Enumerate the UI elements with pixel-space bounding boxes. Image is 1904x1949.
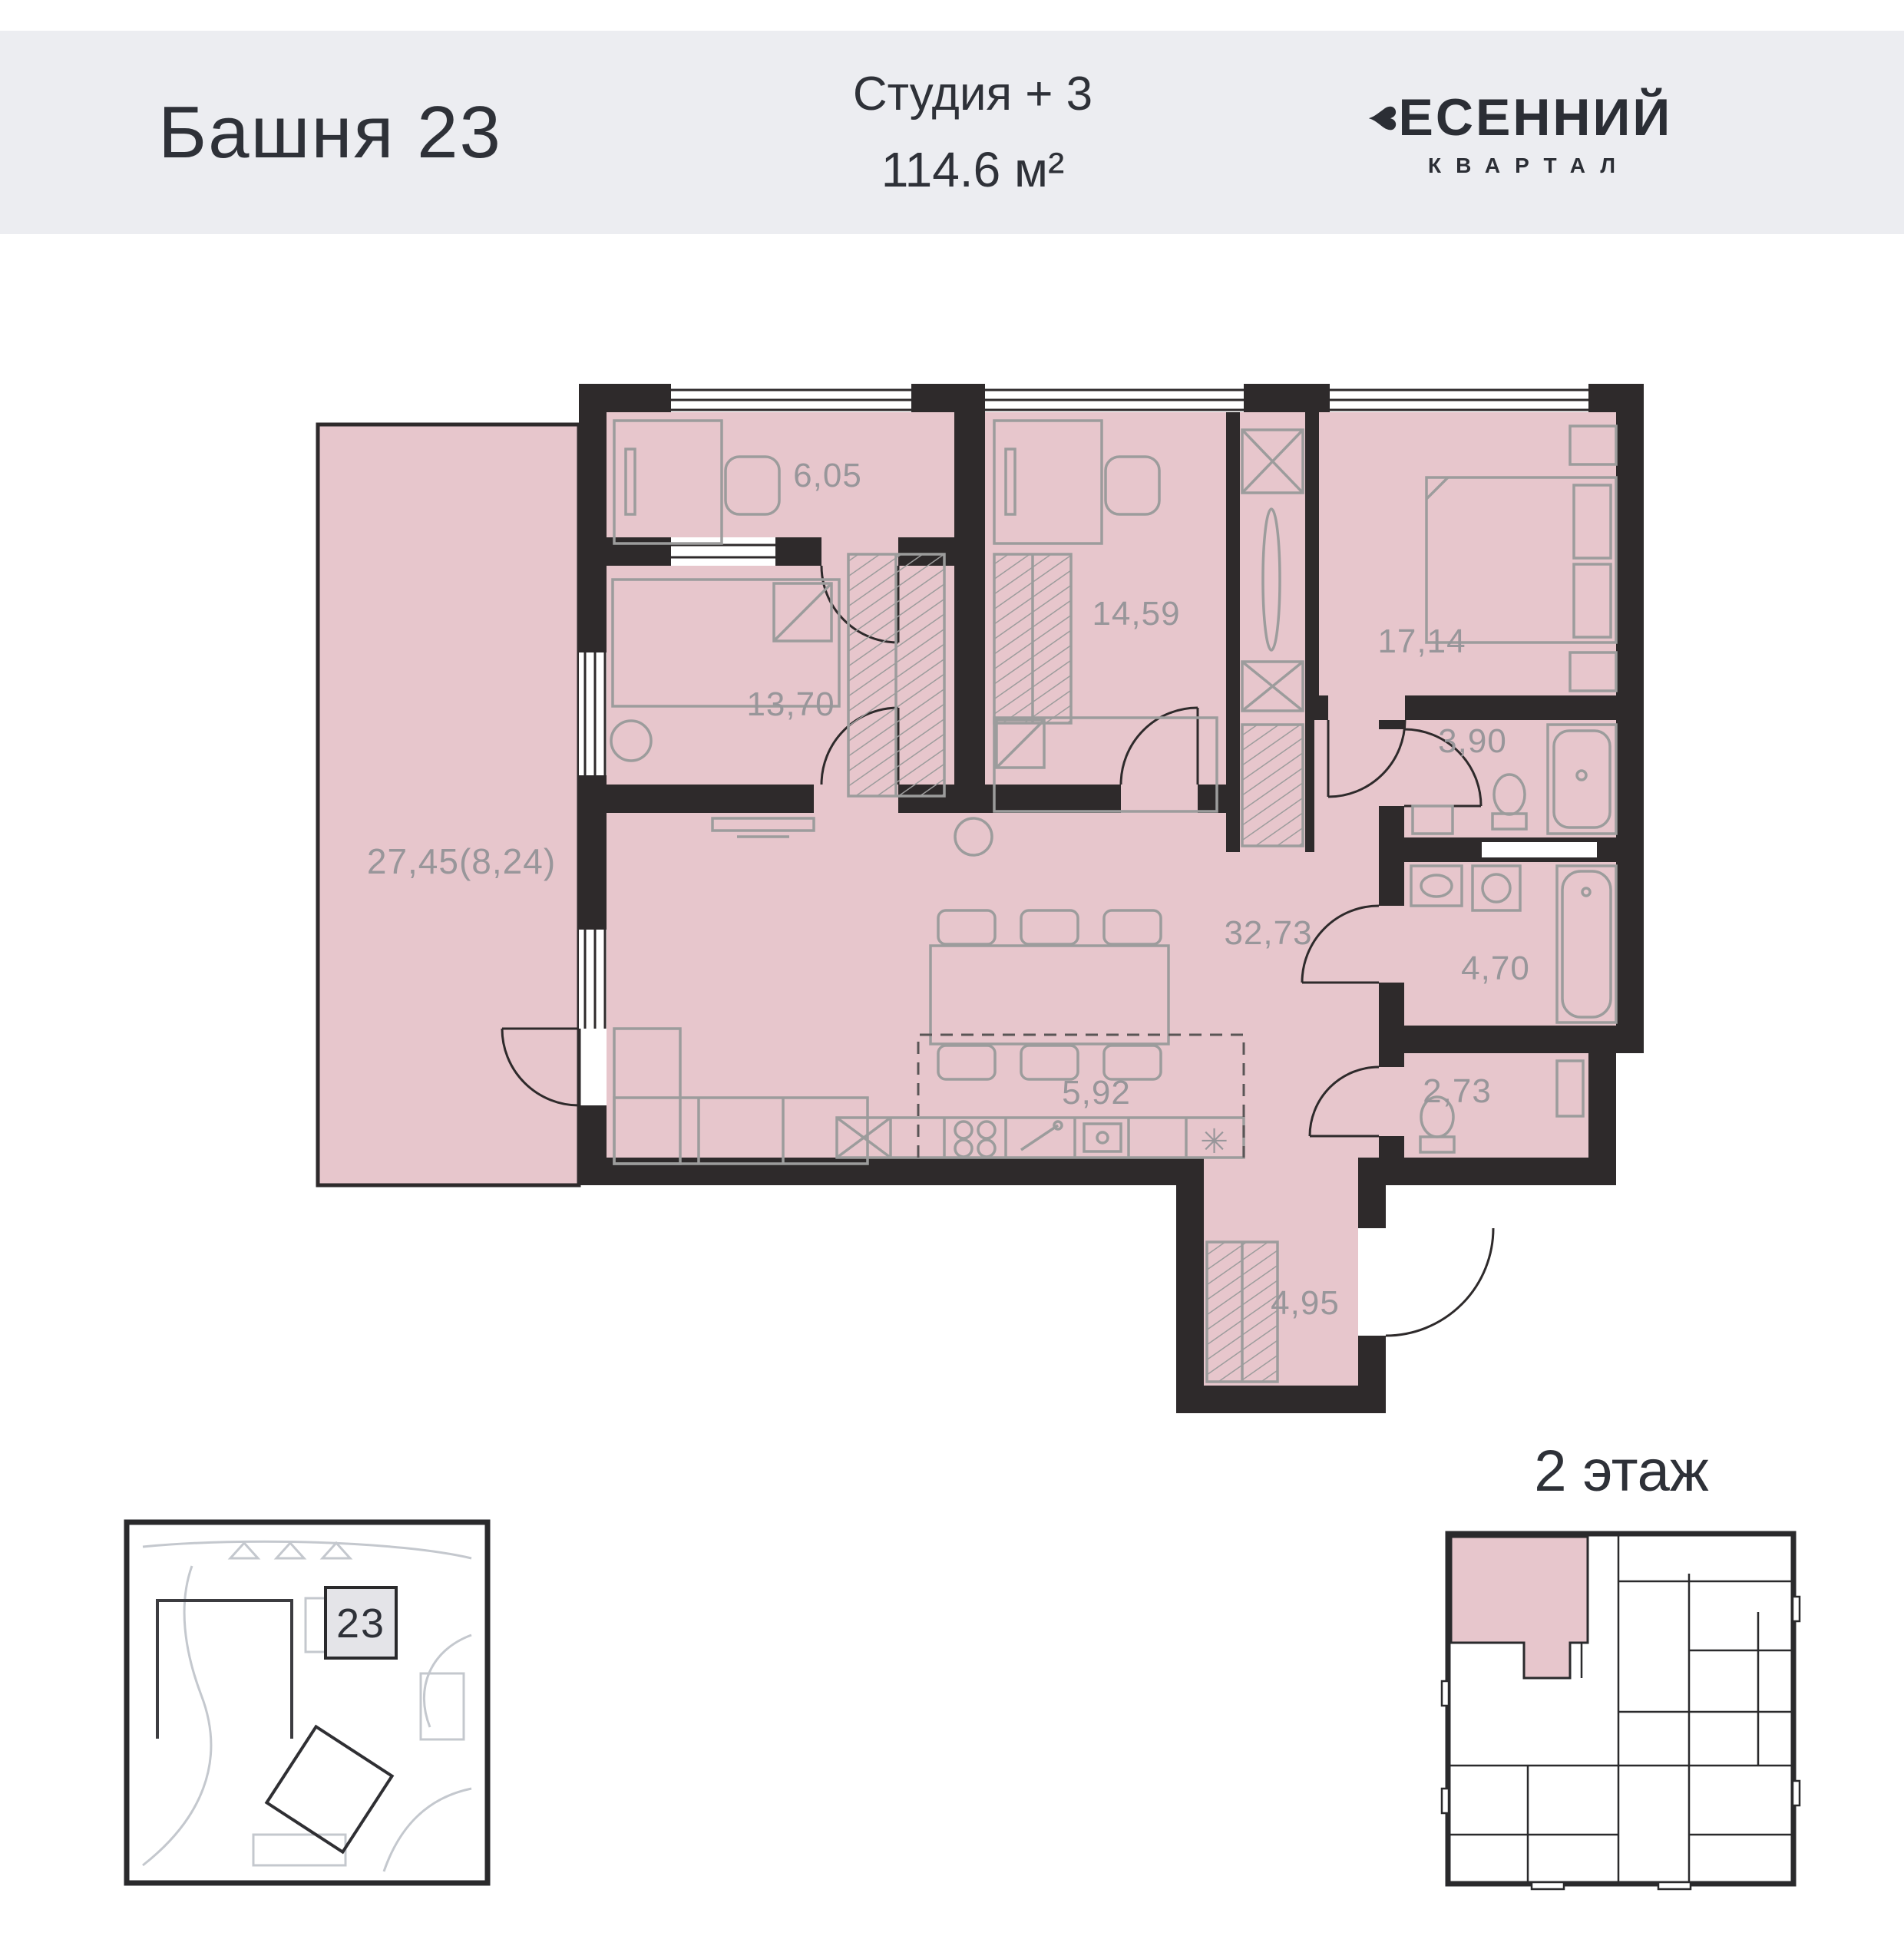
- entry-wardrobe: [1207, 1242, 1278, 1382]
- floor-title: 2 этаж: [1534, 1439, 1709, 1504]
- window-left-2: [579, 930, 607, 1029]
- room-label-bathroom-2: 4,70: [1461, 950, 1530, 987]
- building-number: 23: [336, 1600, 385, 1647]
- boiler-symbol: ✳: [1200, 1123, 1229, 1161]
- room-label-bedroom-2: 14,59: [1092, 595, 1180, 633]
- room-label-kitchen-zone: 5,92: [1062, 1074, 1131, 1112]
- window-top-2: [985, 384, 1244, 412]
- room-label-living: 32,73: [1224, 914, 1312, 952]
- site-map: 23: [127, 1522, 488, 1883]
- room-label-terrace: 27,45(8,24): [367, 841, 556, 881]
- site-map-badge: 23: [326, 1587, 396, 1658]
- room-label-bathroom-1: 3,90: [1438, 722, 1507, 760]
- room-label-bedroom-1: 13,70: [746, 685, 835, 723]
- window-interior: [671, 537, 775, 566]
- window-top-3: [1330, 384, 1588, 412]
- room-label-wc: 2,73: [1423, 1072, 1492, 1110]
- page: Башня 23 Студия + 3 114.6 м² ♥ЕСЕННИЙ КВ…: [0, 0, 1904, 1949]
- room-label-hall: 4,95: [1271, 1284, 1340, 1322]
- door-entry: [1386, 1228, 1493, 1336]
- room-label-wardrobe: 6,05: [793, 457, 862, 494]
- terrace: [318, 424, 579, 1185]
- floor-overview: 2 этаж: [1442, 1439, 1800, 1889]
- window-left-1: [579, 652, 607, 775]
- window-top-1: [671, 384, 911, 412]
- clothes-rack-2: [994, 554, 1071, 723]
- room-label-bedroom-3: 17,14: [1377, 623, 1466, 660]
- clothes-rack-1: [848, 554, 944, 796]
- vent-shaft: [1482, 842, 1597, 857]
- floor-plan-canvas: 27,45(8,24) 6,05 13,70 14,59 17,14 3,90 …: [0, 0, 1904, 1949]
